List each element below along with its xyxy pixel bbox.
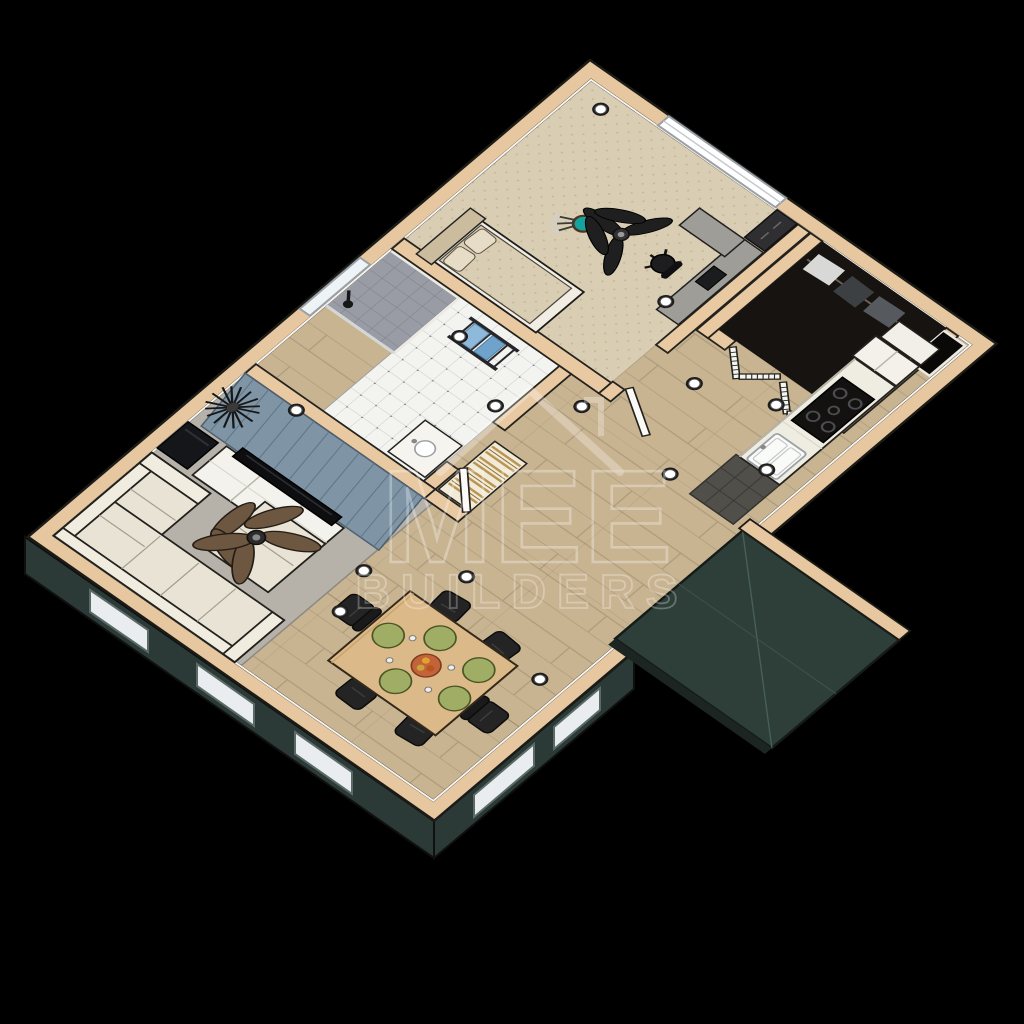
watermark-builders: BUILDERS — [355, 566, 688, 619]
floorplan-render: MEE BUILDERS — [0, 0, 1024, 1024]
floorplan-svg: MEE BUILDERS — [0, 0, 1024, 1024]
